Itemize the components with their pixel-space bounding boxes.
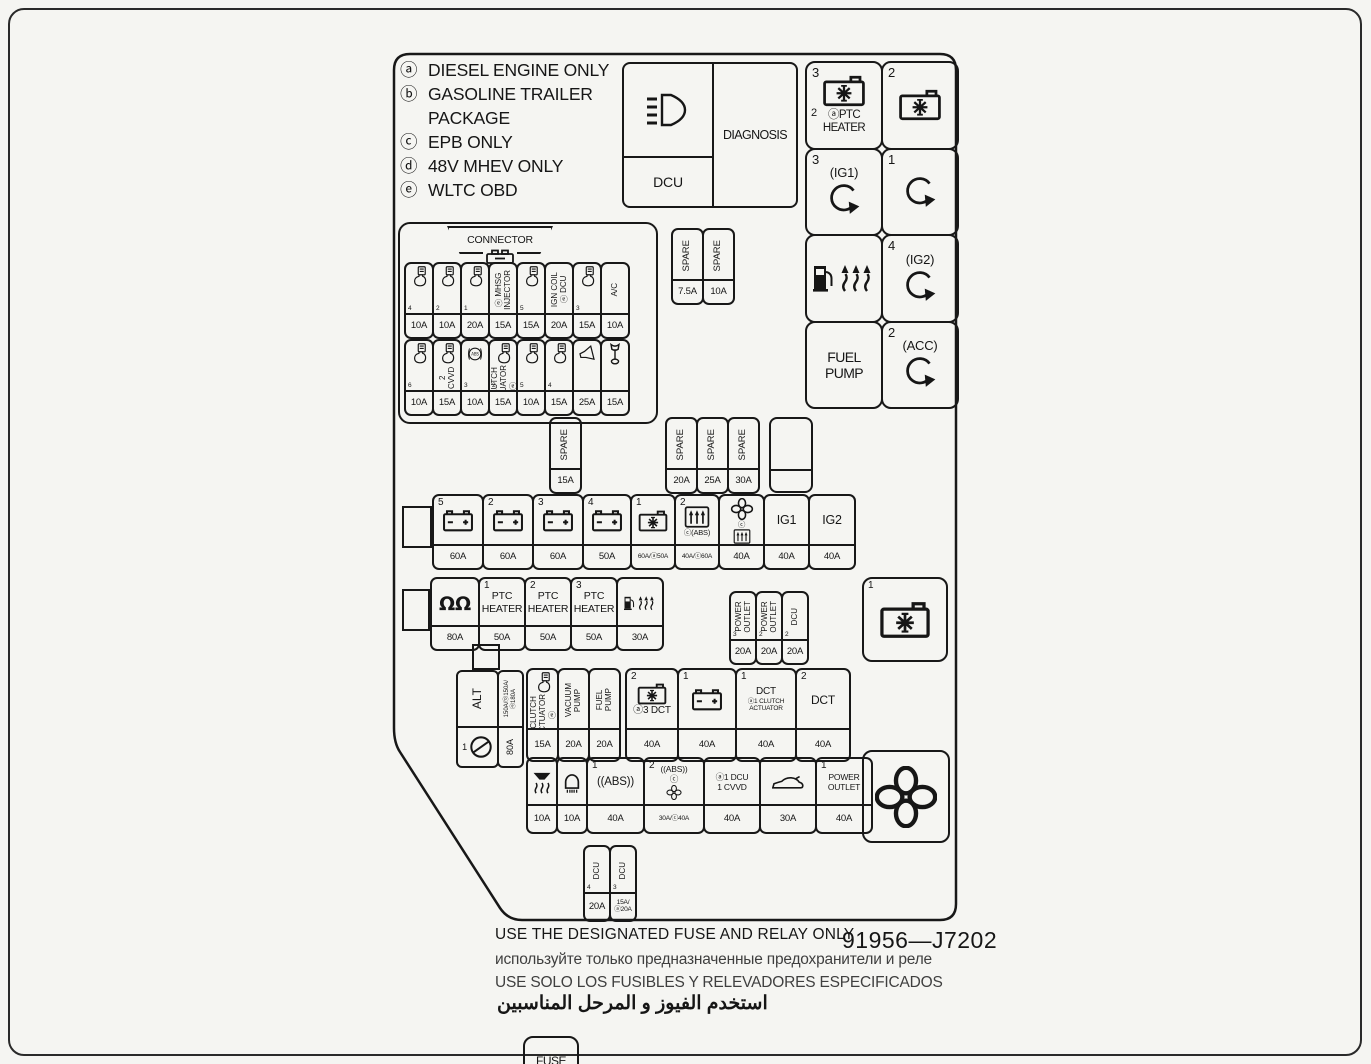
dct-fuse-row-left: 2 CLUTCH ACTUATOR ⓐ 15A VACUUM PUMP 20A … bbox=[526, 668, 619, 762]
relay-battery-single: 1 bbox=[862, 577, 948, 662]
fuse-amp: 20A bbox=[590, 728, 619, 760]
fuse-amp: 10A bbox=[602, 313, 628, 337]
abs-icon bbox=[467, 343, 483, 365]
fuse-amp: 10A bbox=[558, 804, 586, 832]
fuse-cell: DCU 3 15A/ ⓐ20A bbox=[609, 845, 637, 922]
fuse-cell: 1 DCT ⓐ1 CLUTCH ACTUATOR 40A bbox=[735, 668, 797, 762]
fuse-amp: 40A bbox=[679, 728, 735, 760]
fuse-amp: 80A bbox=[505, 739, 515, 755]
ptc-fuse-row: 80A 1 PTC HEATER 50A 2 PTC HEATER bbox=[430, 577, 662, 651]
fuse-label: ⓐ1 CLUTCH ACTUATOR bbox=[748, 699, 784, 713]
fuse-box-diagram-page: ⓐ DIESEL ENGINE ONLY ⓑ GASOLINE TRAILER … bbox=[0, 0, 1371, 1064]
relay-grid: 3 2 ⓐPTC HEATER 2 3 (IG1) 1 4 (IG2) bbox=[806, 62, 958, 408]
alternator-cell: 1 bbox=[456, 726, 499, 768]
fuse-amp: 30A bbox=[618, 625, 662, 649]
battery-fan-icon bbox=[878, 601, 932, 639]
fuse-cell: IG1 40A bbox=[763, 494, 810, 570]
spare-fuse-cell: SPARE 20A bbox=[665, 417, 698, 494]
spare-fuses-top: SPARE 7.5A SPARE 10A bbox=[671, 228, 733, 305]
diagnosis-cell: DIAGNOSIS bbox=[714, 64, 796, 206]
fuse-label: SPARE bbox=[707, 429, 718, 461]
fuse-label: ((ABS)) bbox=[661, 765, 688, 774]
fuse-number: 2 bbox=[680, 497, 685, 508]
legend-item: ⓔ WLTC OBD bbox=[400, 178, 630, 202]
legend-text: DIESEL ENGINE ONLY bbox=[428, 58, 609, 82]
fuse-label: 1 CVVD bbox=[717, 783, 747, 792]
fuse-label: ⓒ bbox=[670, 775, 678, 784]
fuse-amp: 30A bbox=[729, 468, 758, 492]
fuse-label: PTC bbox=[538, 591, 558, 602]
fuse-label: ⓐ MHSG INJECTOR bbox=[494, 270, 512, 310]
fuse-amp: 40A bbox=[720, 544, 763, 568]
fuse-cell: VACUUM PUMP 20A bbox=[557, 668, 590, 762]
legend-item: ⓓ 48V MHEV ONLY bbox=[400, 154, 630, 178]
fuse-amp: 15A bbox=[490, 390, 516, 414]
fuse-cell: 3 15A bbox=[572, 262, 602, 339]
fuse-cell: 10A bbox=[526, 757, 558, 834]
legend-key: ⓑ bbox=[400, 82, 420, 106]
fuse-number: 6 bbox=[408, 382, 411, 389]
fuse-label: SPARE bbox=[713, 240, 724, 272]
fuse-amp: 30A/ⓒ40A bbox=[645, 804, 703, 832]
fuse-amp: 10A bbox=[704, 279, 733, 303]
fuse-number: 4 bbox=[408, 305, 411, 312]
injector-icon bbox=[535, 672, 551, 694]
fuse-amp: 40A bbox=[705, 804, 759, 832]
spare-fuse-cell: SPARE 10A bbox=[702, 228, 735, 305]
legend: ⓐ DIESEL ENGINE ONLY ⓑ GASOLINE TRAILER … bbox=[400, 58, 630, 202]
spare-fuse-cell: SPARE 7.5A bbox=[671, 228, 704, 305]
fuse-cell: 3 CLUTCH ACTUATOR ⓐ 2 15A bbox=[488, 339, 518, 416]
fuse-number: 2 bbox=[631, 671, 636, 682]
battery-icon bbox=[492, 510, 524, 532]
fuse-cell: 5 15A bbox=[516, 262, 546, 339]
relay-label: FUEL bbox=[827, 349, 860, 365]
battfan-icon bbox=[637, 510, 669, 532]
fuse-label: DCT bbox=[756, 687, 776, 698]
injector-icon bbox=[467, 266, 483, 288]
legend-text: 48V MHEV ONLY bbox=[428, 154, 563, 178]
fuse-cell: POWER OUTLET 3 20A bbox=[729, 591, 757, 665]
dcu-relay-cell: DCU bbox=[624, 158, 712, 206]
fuse-amp: 40A bbox=[797, 728, 849, 760]
fuse-label: ⓒ bbox=[738, 521, 745, 529]
fuse-cell: 30A bbox=[616, 577, 664, 651]
alt-rating-cell: 150A/ⓓ150A/ ⓐ180A bbox=[497, 670, 524, 728]
fuse-cell: 6 10A bbox=[404, 339, 434, 416]
fuse-number: 1 bbox=[462, 742, 467, 752]
legend-text: PACKAGE bbox=[428, 106, 630, 130]
fuse-number: 2 bbox=[759, 631, 762, 638]
mount-tab bbox=[402, 506, 432, 548]
fuse-number: 3 bbox=[464, 382, 467, 389]
fuse-amp: 60A bbox=[534, 544, 582, 568]
lamp-icon bbox=[558, 772, 586, 794]
fuse-label: POWER OUTLET bbox=[734, 601, 752, 633]
relay-number: 2 bbox=[888, 325, 895, 340]
fuse-amp: 15A bbox=[546, 390, 572, 414]
fuse-amp: 15A bbox=[551, 468, 580, 492]
fuse-label: IG2 bbox=[822, 514, 842, 527]
fuse-label: SPARE bbox=[682, 240, 693, 272]
fuse-label: 2 CLUTCH ACTUATOR ⓐ bbox=[529, 694, 557, 728]
fuse-number: 5 bbox=[438, 497, 443, 508]
fuse-amp: 15A bbox=[434, 390, 460, 414]
fuse-label: POWER bbox=[828, 773, 859, 782]
relay-number: 4 bbox=[888, 238, 895, 253]
fuse-cell: 1 ((ABS)) 40A bbox=[586, 757, 645, 834]
fuse-label: ⓐ3 DCT bbox=[633, 706, 671, 717]
washerheat-icon bbox=[528, 772, 556, 794]
relay-box-headlight-dcu-diagnosis: DCU DIAGNOSIS bbox=[622, 62, 798, 208]
relay-label: HEATER bbox=[823, 122, 865, 134]
fuse-amp: 25A bbox=[698, 468, 727, 492]
fuse-cell: 2 DCT 40A bbox=[795, 668, 851, 762]
fuse-number: 3 bbox=[613, 884, 616, 891]
fuse-amp: 60A bbox=[434, 544, 482, 568]
fuse-label: DCT bbox=[811, 694, 835, 707]
fuse-label: HEATER bbox=[528, 604, 569, 615]
fuse-label: POWER OUTLET bbox=[760, 601, 778, 633]
fuse-amp: 20A bbox=[731, 639, 755, 663]
fuse-cell: 80A bbox=[430, 577, 480, 651]
fuse-number: 4 bbox=[548, 382, 551, 389]
fuse-puller-box: FUSE PULLER bbox=[523, 1036, 579, 1064]
fuse-cell: 1 40A bbox=[677, 668, 737, 762]
legend-text: EPB ONLY bbox=[428, 130, 513, 154]
fuse-number: 2 bbox=[801, 671, 806, 682]
fuse-number: 5 bbox=[520, 305, 523, 312]
fuse-number: 1 bbox=[683, 671, 688, 682]
relay-1: 1 bbox=[881, 148, 959, 237]
fuse-cell: 5 60A bbox=[432, 494, 484, 570]
injector-icon bbox=[439, 343, 455, 365]
fuse-label: FUEL PUMP bbox=[595, 688, 613, 711]
battery-icon bbox=[442, 510, 474, 532]
injector-icon bbox=[411, 266, 427, 288]
relay-arrow-icon bbox=[902, 268, 938, 304]
fuse-number: 3 bbox=[576, 305, 579, 312]
relay-number: 2 bbox=[888, 65, 895, 80]
fuse-row-2: 6 10A 2 CVVD 15A 3 10A bbox=[404, 339, 628, 416]
fuse-cell: 2 60A bbox=[482, 494, 534, 570]
relay-number: 1 bbox=[888, 152, 895, 167]
legend-key: ⓔ bbox=[400, 178, 420, 202]
relay-ptc-heater: 3 2 ⓐPTC HEATER bbox=[805, 61, 883, 150]
fuse-cell: IGN COIL ⓐ DCU 20A bbox=[544, 262, 574, 339]
fuse-cell: 4 15A bbox=[544, 339, 574, 416]
fuse-cell: 30A bbox=[759, 757, 817, 834]
relay-number: 3 bbox=[812, 65, 819, 80]
legend-item: ⓑ GASOLINE TRAILER bbox=[400, 82, 630, 106]
fuse-amp: 50A bbox=[572, 625, 616, 649]
fuse-label: DCU bbox=[592, 862, 601, 879]
fuse-number: 1 bbox=[592, 760, 597, 771]
fuse-cell: 2 PTC HEATER 50A bbox=[524, 577, 572, 651]
fuel-pump-heater-icon bbox=[813, 262, 875, 294]
fuse-number: 2 bbox=[530, 580, 535, 591]
fuse-label: DCU bbox=[618, 862, 627, 879]
relay-label: PUMP bbox=[825, 365, 863, 381]
alternator-icon bbox=[469, 735, 493, 759]
fuse-number: 4 bbox=[587, 884, 590, 891]
fuse-amp: 10A bbox=[462, 390, 488, 414]
fuse-cell: FUEL PUMP 20A bbox=[588, 668, 621, 762]
defrost-icon bbox=[730, 529, 754, 544]
fuse-number: 2 bbox=[649, 760, 654, 771]
injector-icon bbox=[551, 343, 567, 365]
fuse-cell: 3 10A bbox=[460, 339, 490, 416]
fuse-cell: 2 ⓒ(ABS) 40A/ⓒ60A bbox=[674, 494, 720, 570]
fuse-number: 4 bbox=[588, 497, 593, 508]
fuse-amp: 20A bbox=[462, 313, 488, 337]
relay-battery: 2 bbox=[881, 61, 959, 150]
injector-icon bbox=[495, 343, 511, 365]
cooling-fan-box bbox=[862, 750, 950, 843]
main-fuse-row: 5 60A 2 60A bbox=[432, 494, 854, 570]
fuse-amp: 40A/ⓒ60A bbox=[676, 544, 718, 568]
battery-icon bbox=[591, 510, 623, 532]
fuse-cell: 10A bbox=[556, 757, 588, 834]
injector-icon bbox=[523, 266, 539, 288]
relay-arrow-icon bbox=[826, 181, 862, 217]
part-number: 91956—J7202 bbox=[842, 927, 997, 954]
relay-acc: 2 (ACC) bbox=[881, 321, 959, 410]
bottom-mini-fuses: DCU 4 20A DCU 3 15A/ ⓐ20A bbox=[583, 845, 635, 922]
battery-fan-icon bbox=[898, 89, 942, 121]
fuse-label: PTC bbox=[492, 591, 512, 602]
fuse-amp: 40A bbox=[810, 544, 854, 568]
fuse-amp: 30A bbox=[761, 804, 815, 832]
fuse-amp: 20A bbox=[757, 639, 781, 663]
fuse-amp: 40A bbox=[737, 728, 795, 760]
fuse-cell: DCU 4 20A bbox=[583, 845, 611, 922]
fuse-cell: 2 CVVD 15A bbox=[432, 339, 462, 416]
fan-icon bbox=[662, 785, 686, 800]
fuse-cell: 2 CLUTCH ACTUATOR ⓐ 15A bbox=[526, 668, 559, 762]
legend-key: ⓒ bbox=[400, 130, 420, 154]
spare-fuse-cell: SPARE 30A bbox=[727, 417, 760, 494]
injector-icon bbox=[439, 266, 455, 288]
fuse-label: SPARE bbox=[738, 429, 749, 461]
legend-key: ⓐ bbox=[400, 58, 420, 82]
fuse-number: 1 bbox=[636, 497, 641, 508]
fuse-cell: 4 10A bbox=[404, 262, 434, 339]
spare-fuse-cell: SPARE 25A bbox=[696, 417, 729, 494]
relay-arrow-icon bbox=[902, 354, 938, 390]
mount-tab bbox=[402, 589, 430, 631]
fuelheat-icon bbox=[624, 592, 656, 614]
legend-text: WLTC OBD bbox=[428, 178, 517, 202]
fuse-amp: ⓐ180A bbox=[511, 689, 518, 709]
legend-item: ⓐ DIESEL ENGINE ONLY bbox=[400, 58, 630, 82]
fuse-amp: 15A bbox=[602, 390, 628, 414]
warning-text-es: USE SOLO LOS FUSIBLES Y RELEVADORES ESPE… bbox=[495, 974, 943, 992]
relay-fuel-pump: FUEL PUMP bbox=[805, 321, 883, 410]
fuse-number: 2 bbox=[436, 305, 439, 312]
fuse-amp: 10A bbox=[518, 390, 544, 414]
fuse-cell: 2 10A bbox=[432, 262, 462, 339]
fuse-cell: IG2 40A bbox=[808, 494, 856, 570]
fuse-amp: 15A bbox=[490, 313, 516, 337]
fuse-label: ALT bbox=[471, 688, 485, 709]
fuse-label: OUTLET bbox=[828, 783, 860, 792]
fuse-number: 3 bbox=[733, 631, 736, 638]
fuse-amp: 7.5A bbox=[673, 279, 702, 303]
fuse-cell: 3 PTC HEATER 50A bbox=[570, 577, 618, 651]
fuse-amp: 40A bbox=[627, 728, 677, 760]
fuse-amp: 40A bbox=[588, 804, 643, 832]
fuse-cell: 2 ((ABS)) ⓒ 30A/ⓒ40A bbox=[643, 757, 705, 834]
fuse-number: 3 bbox=[538, 497, 543, 508]
battery-icon bbox=[691, 689, 723, 711]
lower-fuse-row: 10A 10A 1 ((ABS)) bbox=[526, 757, 871, 834]
fuse-label: SPARE bbox=[676, 429, 687, 461]
fuse-label: DCU bbox=[790, 608, 799, 625]
battfan-icon bbox=[636, 683, 668, 705]
fuse-amp: 10A bbox=[406, 313, 432, 337]
alt-fuse-cell: ALT bbox=[456, 670, 499, 728]
fuse-label: A/C bbox=[610, 283, 619, 296]
warning-text-ru: используйте только предназначенные предо… bbox=[495, 951, 932, 969]
defrost-icon bbox=[681, 506, 713, 528]
relay-label: (IG2) bbox=[906, 253, 935, 266]
fuse-number: 1 bbox=[464, 305, 467, 312]
battery-icon bbox=[542, 510, 574, 532]
fuse-amp: 15A bbox=[574, 313, 600, 337]
fuse-cell: 4 50A bbox=[582, 494, 632, 570]
fuse-number: 1 bbox=[821, 760, 826, 771]
fuse-label: PTC bbox=[584, 591, 604, 602]
fuse-label: SPARE bbox=[560, 429, 571, 461]
fuse-cell: 1 20A bbox=[460, 262, 490, 339]
fuse-amp: 20A bbox=[559, 728, 588, 760]
fuse-amp: 10A bbox=[528, 804, 556, 832]
fuse-amp: 10A bbox=[406, 390, 432, 414]
fuse-cell: 25A bbox=[572, 339, 602, 416]
fuse-label: ⓐ1 DCU bbox=[716, 773, 749, 782]
fuse-cell: 3 60A bbox=[532, 494, 584, 570]
fuse-amp: 15A bbox=[518, 313, 544, 337]
fuse-number: 2 bbox=[488, 497, 493, 508]
relay-number: 3 bbox=[812, 152, 819, 167]
legend-key: ⓓ bbox=[400, 154, 420, 178]
spare-fuse-cell: SPARE 15A bbox=[549, 417, 582, 494]
legend-text: GASOLINE TRAILER bbox=[428, 82, 593, 106]
fuse-puller-label: FUSE bbox=[536, 1054, 566, 1064]
fuse-label: ⓒ(ABS) bbox=[684, 529, 710, 537]
injector-icon bbox=[579, 266, 595, 288]
horn-icon bbox=[579, 343, 595, 365]
fuse-number: 3 bbox=[576, 580, 581, 591]
fuse-amp: 60A bbox=[484, 544, 532, 568]
headlight-icon bbox=[645, 92, 691, 128]
fuse-number: 5 bbox=[520, 382, 523, 389]
dct-fuse-row-right: 2 ⓐ3 DCT 40A 1 40A 1 bbox=[625, 668, 849, 762]
fuse-amp: 15A/ ⓐ20A bbox=[611, 892, 635, 920]
fuse-amp: 20A bbox=[585, 892, 609, 920]
fuse-amp: 10A bbox=[434, 313, 460, 337]
relay-ig1: 3 (IG1) bbox=[805, 148, 883, 237]
relay-arrow-icon bbox=[902, 174, 938, 210]
fuse-cell: 5 10A bbox=[516, 339, 546, 416]
fuse-number: 1 bbox=[484, 580, 489, 591]
fuse-cell: 15A bbox=[600, 339, 630, 416]
fuse-label: IGN COIL ⓐ DCU bbox=[550, 272, 568, 307]
relay-label: (ACC) bbox=[902, 339, 937, 352]
fuse-number: 2 bbox=[785, 631, 788, 638]
injector-icon bbox=[523, 343, 539, 365]
relay-label: ⓐPTC bbox=[828, 109, 860, 121]
fuse-cell: 1 POWER OUTLET 40A bbox=[815, 757, 873, 834]
fuse-cell: ⓐ1 DCU 1 CVVD 40A bbox=[703, 757, 761, 834]
injector-icon bbox=[411, 343, 427, 365]
fuse-label: ((ABS)) bbox=[597, 776, 634, 788]
fuse-amp: 40A bbox=[817, 804, 871, 832]
relay-ig2: 4 (IG2) bbox=[881, 234, 959, 323]
fuse-label: 2 CVVD bbox=[438, 365, 456, 390]
warning-text-ar: استخدم الفيوز و المرحل المناسبين bbox=[497, 992, 768, 1015]
fuse-row-1: 4 10A 2 10A 1 20A bbox=[404, 262, 628, 339]
trumpet-icon bbox=[607, 343, 623, 365]
fuse-amp: 20A bbox=[667, 468, 696, 492]
fuse-cell: DCU 2 20A bbox=[781, 591, 809, 665]
fuse-cell: 2 ⓐ3 DCT 40A bbox=[625, 668, 679, 762]
fan-icon bbox=[875, 766, 937, 828]
fuse-amp: 15A bbox=[528, 728, 557, 760]
relay-fuel-heater bbox=[805, 234, 883, 323]
fuse-label: IG1 bbox=[777, 514, 797, 527]
glow-icon bbox=[439, 592, 471, 614]
spare-fuses-right: SPARE 20A SPARE 25A SPARE 30A bbox=[665, 417, 758, 494]
relay-number: 1 bbox=[868, 580, 873, 592]
alt-amp-cell: 80A bbox=[497, 726, 524, 768]
fuse-amp: 20A bbox=[546, 313, 572, 337]
fuse-number: 2 bbox=[492, 382, 495, 389]
fuse-amp: 20A bbox=[783, 639, 807, 663]
car-icon bbox=[772, 772, 804, 794]
fuse-amp: 40A bbox=[765, 544, 808, 568]
mini-fuse-row: POWER OUTLET 3 20A POWER OUTLET 2 20A DC… bbox=[729, 591, 807, 665]
fuse-label: VACUUM PUMP bbox=[564, 683, 582, 717]
battery-fan-icon bbox=[822, 75, 866, 107]
fuse-cell: POWER OUTLET 2 20A bbox=[755, 591, 783, 665]
legend-item: ⓒ EPB ONLY bbox=[400, 130, 630, 154]
fan-icon bbox=[726, 498, 758, 520]
relay-number: 2 bbox=[811, 107, 817, 119]
headlight-relay-cell bbox=[624, 64, 712, 158]
fuse-number: 1 bbox=[741, 671, 746, 682]
fuse-label: HEATER bbox=[574, 604, 615, 615]
fuse-cell: ⓐ MHSG INJECTOR 15A bbox=[488, 262, 518, 339]
fuse-cell: 1 60A/ⓐ50A bbox=[630, 494, 676, 570]
fuse-amp: 60A/ⓐ50A bbox=[632, 544, 674, 568]
fuse-amp: 50A bbox=[584, 544, 630, 568]
mount-tab bbox=[472, 644, 500, 670]
fuse-cell: A/C 10A bbox=[600, 262, 630, 339]
fuse-amp: 25A bbox=[574, 390, 600, 414]
spare-fuse-mid: SPARE 15A bbox=[549, 417, 580, 494]
fuse-cell: ⓒ 40A bbox=[718, 494, 765, 570]
relay-label: (IG1) bbox=[830, 166, 859, 179]
warning-text-en: USE THE DESIGNATED FUSE AND RELAY ONLY bbox=[495, 926, 854, 944]
empty-fuse-slot bbox=[769, 417, 813, 493]
fuse-label: HEATER bbox=[482, 604, 523, 615]
fuse-cell: 1 PTC HEATER 50A bbox=[478, 577, 526, 651]
fuse-amp: 50A bbox=[526, 625, 570, 649]
fuse-amp: 150A/ⓓ150A/ bbox=[504, 680, 511, 717]
